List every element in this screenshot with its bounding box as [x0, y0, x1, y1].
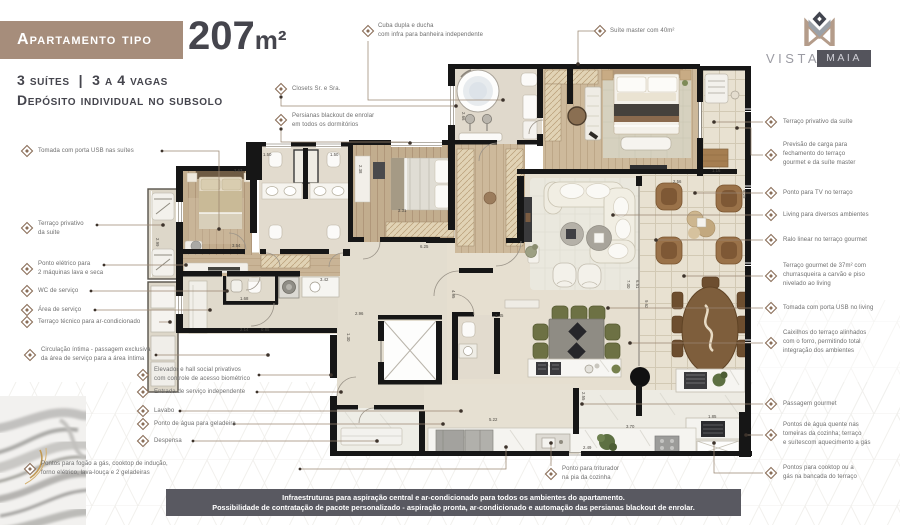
svg-text:1.50: 1.50: [263, 152, 272, 157]
svg-text:4.95: 4.95: [451, 290, 456, 299]
svg-text:8.25: 8.25: [742, 190, 747, 199]
svg-text:1.50: 1.50: [330, 152, 339, 157]
svg-text:1.85: 1.85: [708, 414, 717, 419]
svg-text:2.49: 2.49: [583, 445, 592, 450]
svg-text:1.16: 1.16: [712, 168, 721, 173]
svg-text:2.66: 2.66: [461, 112, 466, 121]
svg-text:2.55: 2.55: [581, 392, 586, 401]
svg-text:2.38: 2.38: [358, 165, 363, 174]
svg-text:6.25: 6.25: [420, 244, 429, 249]
svg-text:6.51: 6.51: [635, 280, 640, 289]
svg-text:2.99: 2.99: [155, 238, 160, 247]
svg-text:7.00: 7.00: [626, 280, 631, 289]
svg-text:5.22: 5.22: [489, 417, 498, 422]
svg-text:1.45: 1.45: [495, 313, 504, 318]
svg-text:2.96: 2.96: [355, 311, 364, 316]
svg-text:3.70: 3.70: [626, 424, 635, 429]
svg-text:2.14: 2.14: [240, 327, 249, 332]
svg-text:3.42: 3.42: [320, 277, 329, 282]
svg-text:0.85: 0.85: [261, 327, 270, 332]
svg-text:3.31: 3.31: [398, 208, 407, 213]
svg-text:2.63: 2.63: [234, 168, 243, 173]
svg-text:1.68: 1.68: [240, 296, 249, 301]
svg-text:2.56: 2.56: [673, 179, 682, 184]
svg-text:3.54: 3.54: [232, 243, 241, 248]
svg-text:1.30: 1.30: [346, 333, 351, 342]
